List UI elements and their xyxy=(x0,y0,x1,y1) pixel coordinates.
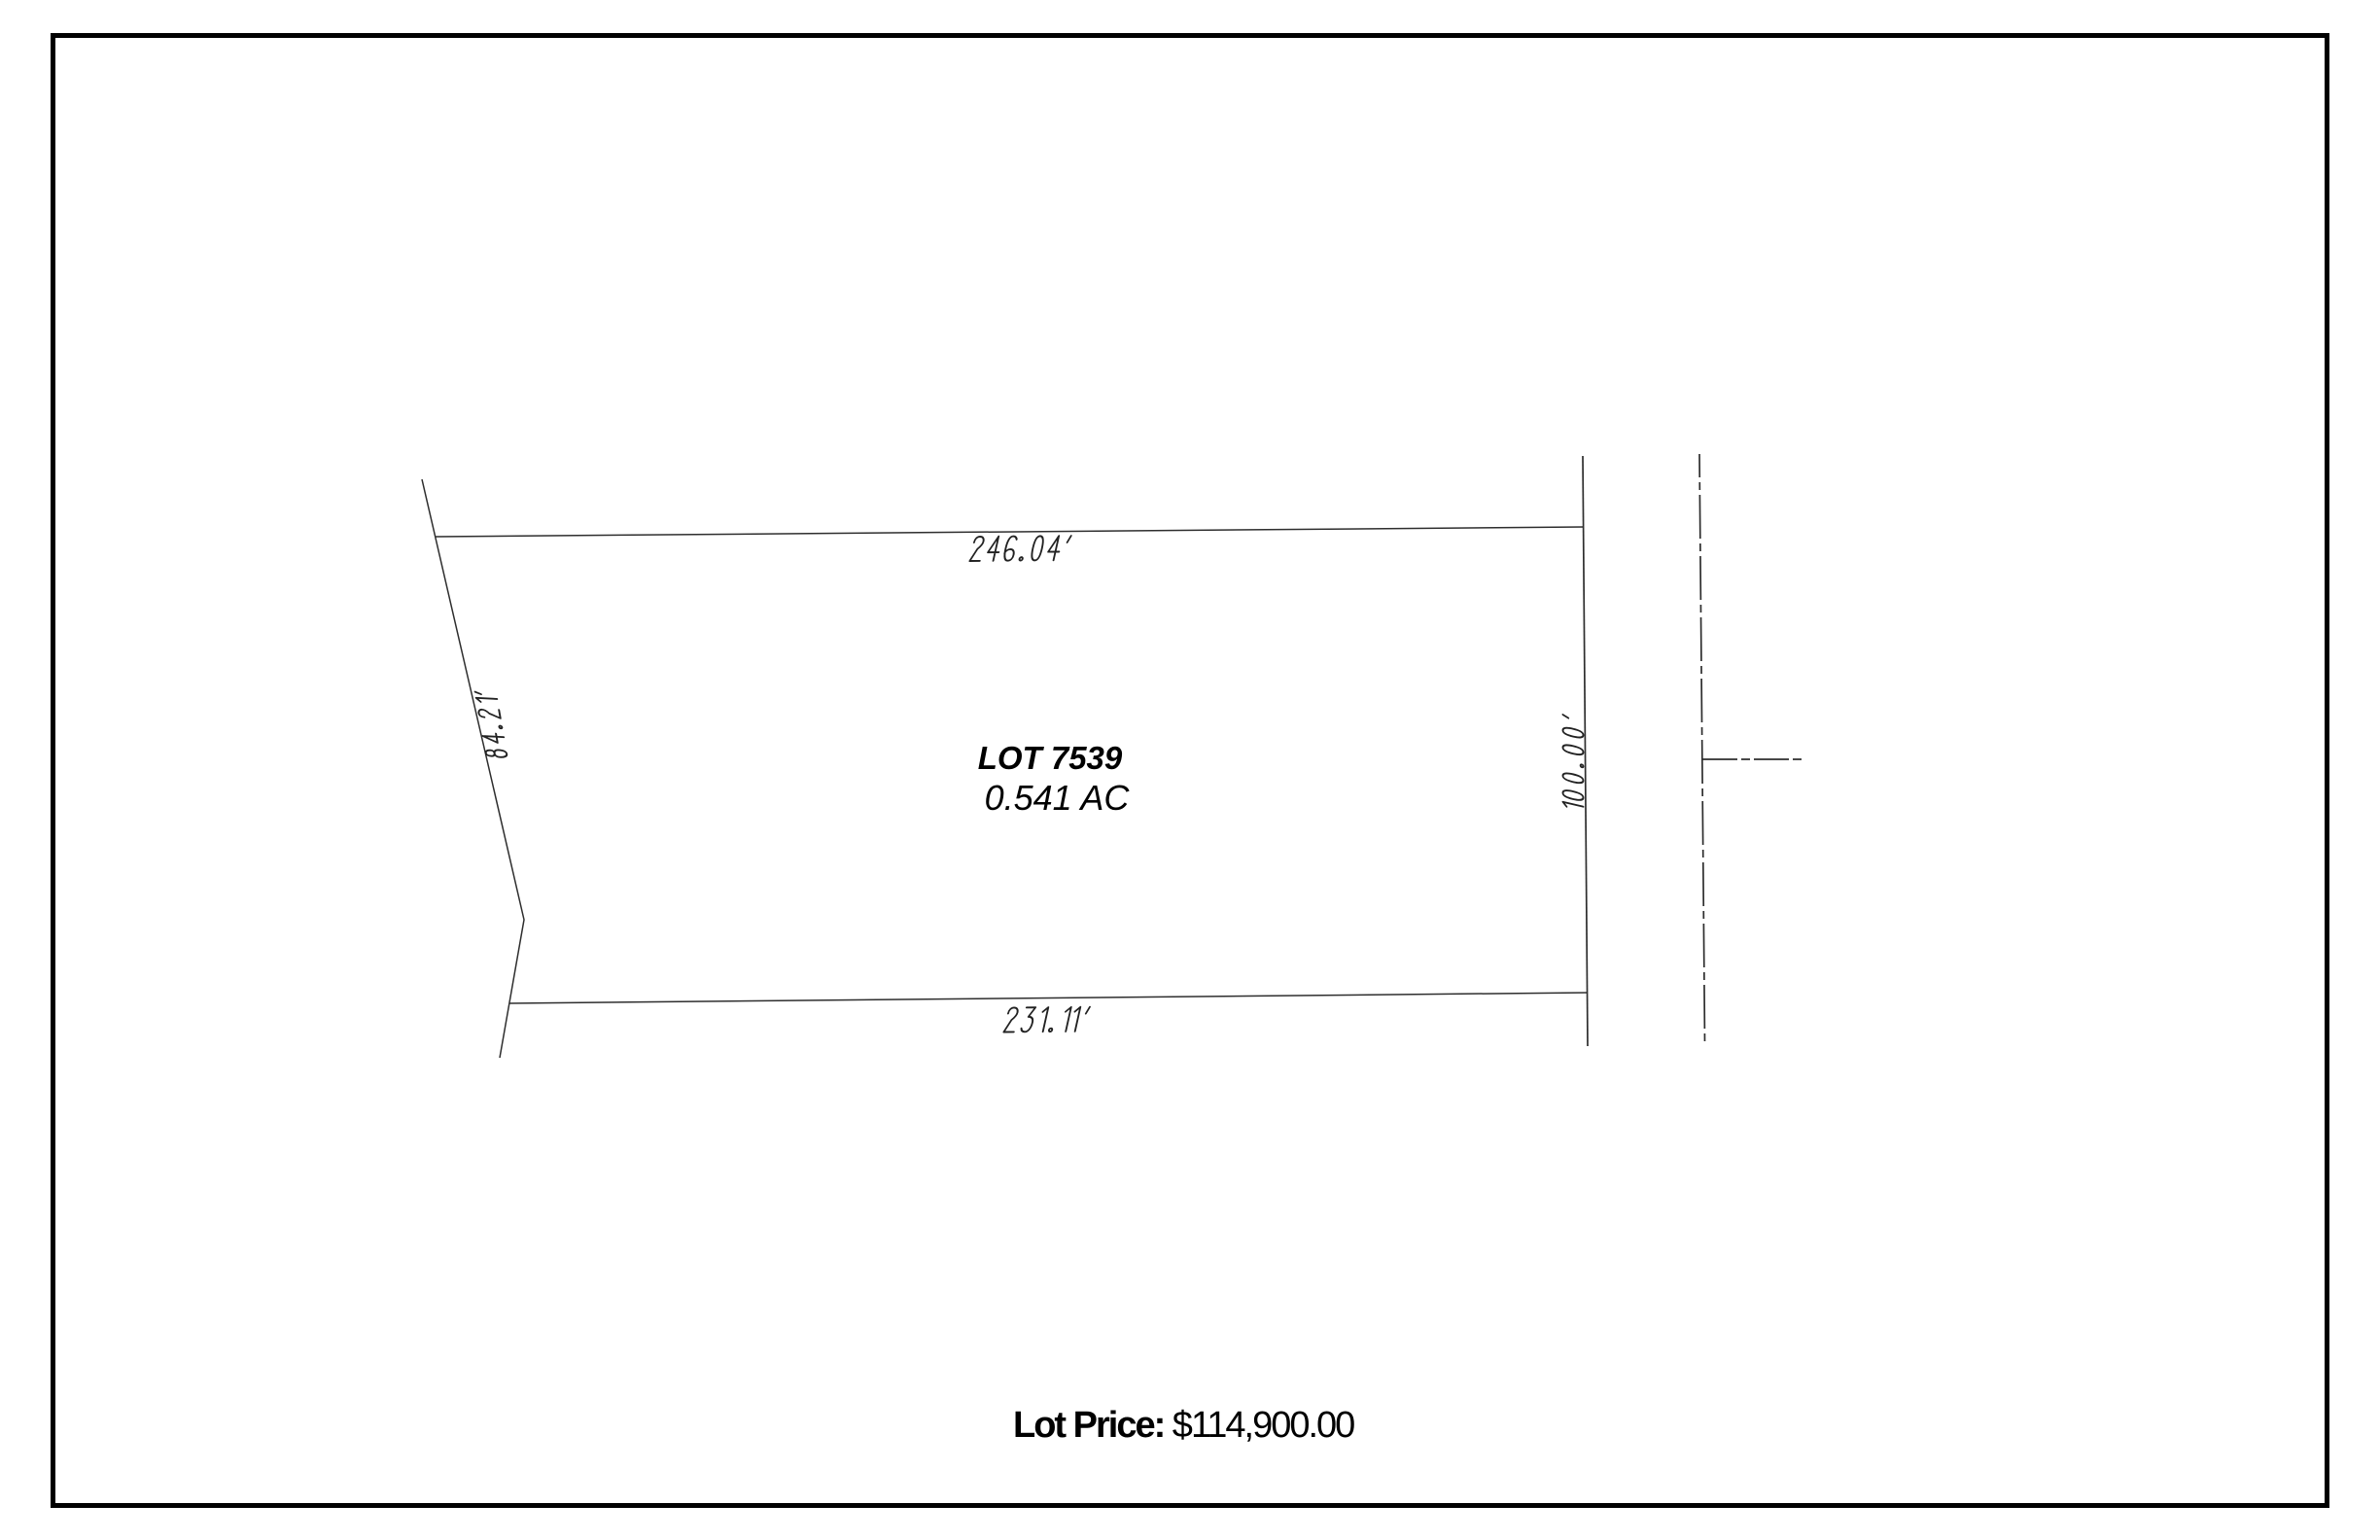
svg-text:LOT 7539: LOT 7539 xyxy=(978,740,1123,776)
svg-text:0.541 AC: 0.541 AC xyxy=(985,778,1131,818)
svg-text:Lot Price: $114,900.00: Lot Price: $114,900.00 xyxy=(1013,1405,1354,1446)
